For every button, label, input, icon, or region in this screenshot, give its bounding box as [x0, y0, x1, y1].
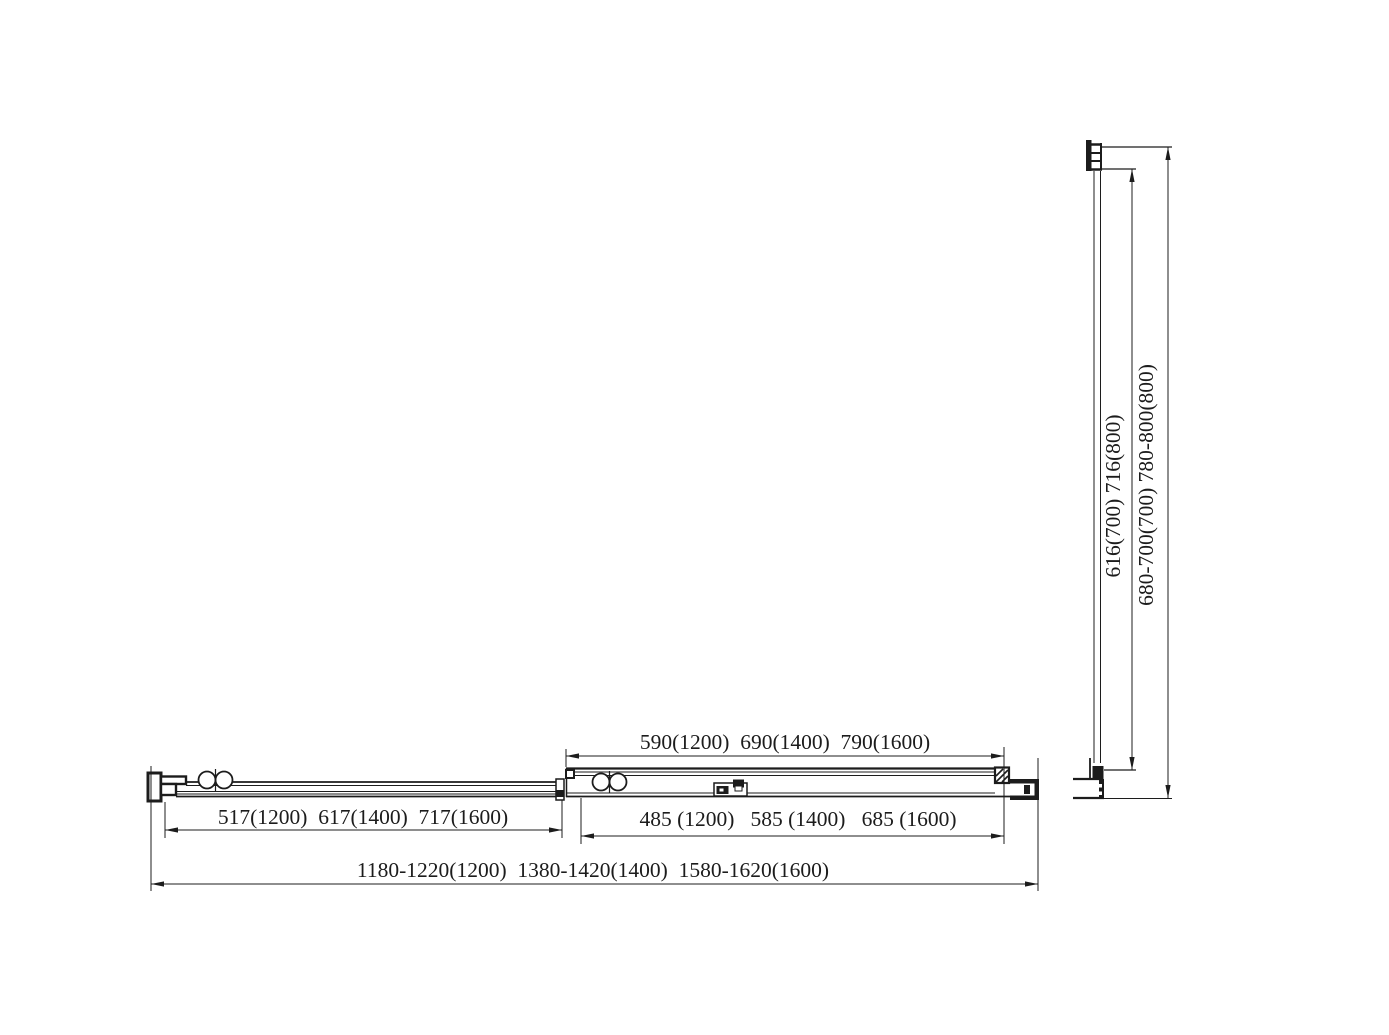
- sliding-door-panel: [176, 769, 564, 800]
- dimension-fixed-panel: 485 (1200) 585 (1400) 685 (1600): [581, 798, 1004, 844]
- door-handle: [714, 780, 747, 797]
- dim-glass-height-label: 616(700) 716(800): [1101, 414, 1125, 577]
- side-glass-panel: [1094, 171, 1101, 763]
- dim-sliding-panel-label: 517(1200) 617(1400) 717(1600): [218, 805, 508, 829]
- drawing-canvas: 590(1200) 690(1400) 790(1600) 517(1200) …: [0, 0, 1389, 1035]
- dim-door-opening-label: 590(1200) 690(1400) 790(1600): [640, 730, 930, 754]
- side-view: 616(700) 716(800) 680-700(700) 780-800(8…: [1073, 140, 1172, 799]
- roller-wheels-left-icon: [199, 769, 233, 791]
- dim-overall-height-label: 680-700(700) 780-800(800): [1134, 364, 1158, 606]
- technical-drawing: 590(1200) 690(1400) 790(1600) 517(1200) …: [0, 0, 1389, 1035]
- dimension-sliding-panel: 517(1200) 617(1400) 717(1600): [165, 800, 562, 838]
- dim-fixed-panel-label: 485 (1200) 585 (1400) 685 (1600): [639, 807, 956, 831]
- top-bracket-profile: [1086, 140, 1102, 171]
- dim-overall-width-label: 1180-1220(1200) 1380-1420(1400) 1580-162…: [357, 858, 829, 882]
- panel-end-cap: [556, 779, 564, 800]
- roller-wheels-right-icon: [593, 771, 627, 793]
- dimension-glass-height: 616(700) 716(800): [1101, 169, 1136, 770]
- bottom-floor-profile: [1073, 758, 1104, 799]
- plan-view: 590(1200) 690(1400) 790(1600) 517(1200) …: [148, 730, 1039, 891]
- corner-block: [995, 768, 1009, 784]
- fixed-door-panel: [566, 768, 1010, 798]
- right-wall-profile: [1010, 758, 1039, 891]
